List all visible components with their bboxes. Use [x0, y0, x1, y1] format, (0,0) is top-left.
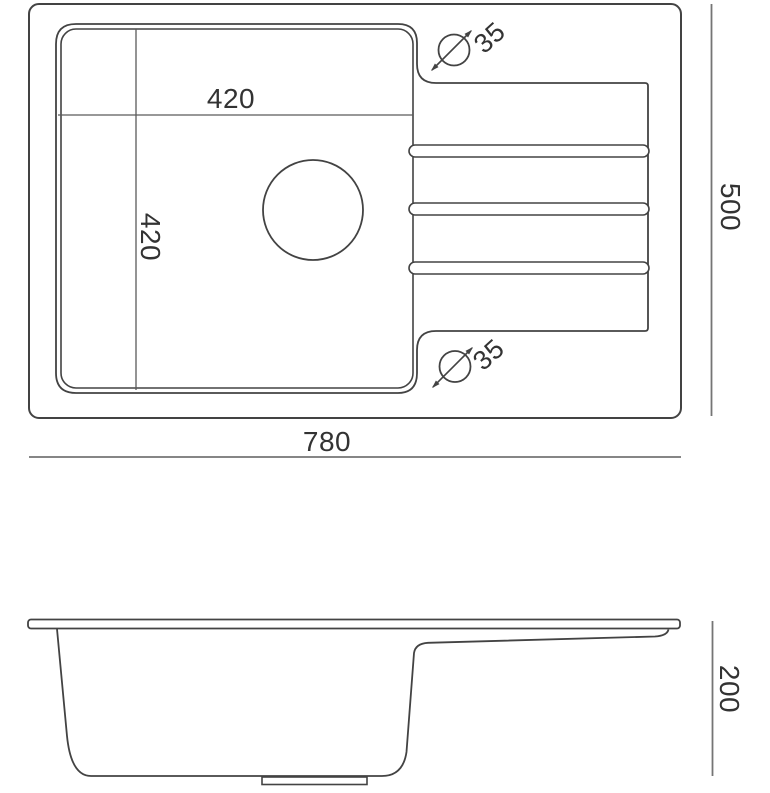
- tap-hole-bottom-circle: [440, 351, 471, 382]
- drawing-canvas: 420 420 500 780 35 35 200: [0, 0, 770, 793]
- drainer-rib: [409, 145, 649, 157]
- tap-hole-top-circle: [439, 35, 470, 66]
- side-view-counter-slab: [28, 620, 680, 629]
- side-view-bowl-profile: [57, 629, 669, 776]
- top-view: [29, 4, 712, 457]
- tap-hole-top: [431, 30, 472, 71]
- drainer-ribs: [409, 145, 649, 274]
- dim-label-overall-depth: 500: [716, 183, 744, 231]
- dim-label-height: 200: [715, 665, 743, 713]
- drain-circle: [263, 160, 363, 260]
- side-view-drain-fitting: [262, 777, 367, 785]
- dim-label-bowl-width: 420: [207, 85, 255, 113]
- dim-label-bowl-depth: 420: [136, 213, 164, 261]
- side-view: [28, 620, 713, 785]
- drainer-rib: [409, 262, 649, 274]
- dim-label-overall-width: 780: [303, 428, 351, 456]
- drainer-rib: [409, 203, 649, 215]
- sink-technical-drawing: [0, 0, 770, 793]
